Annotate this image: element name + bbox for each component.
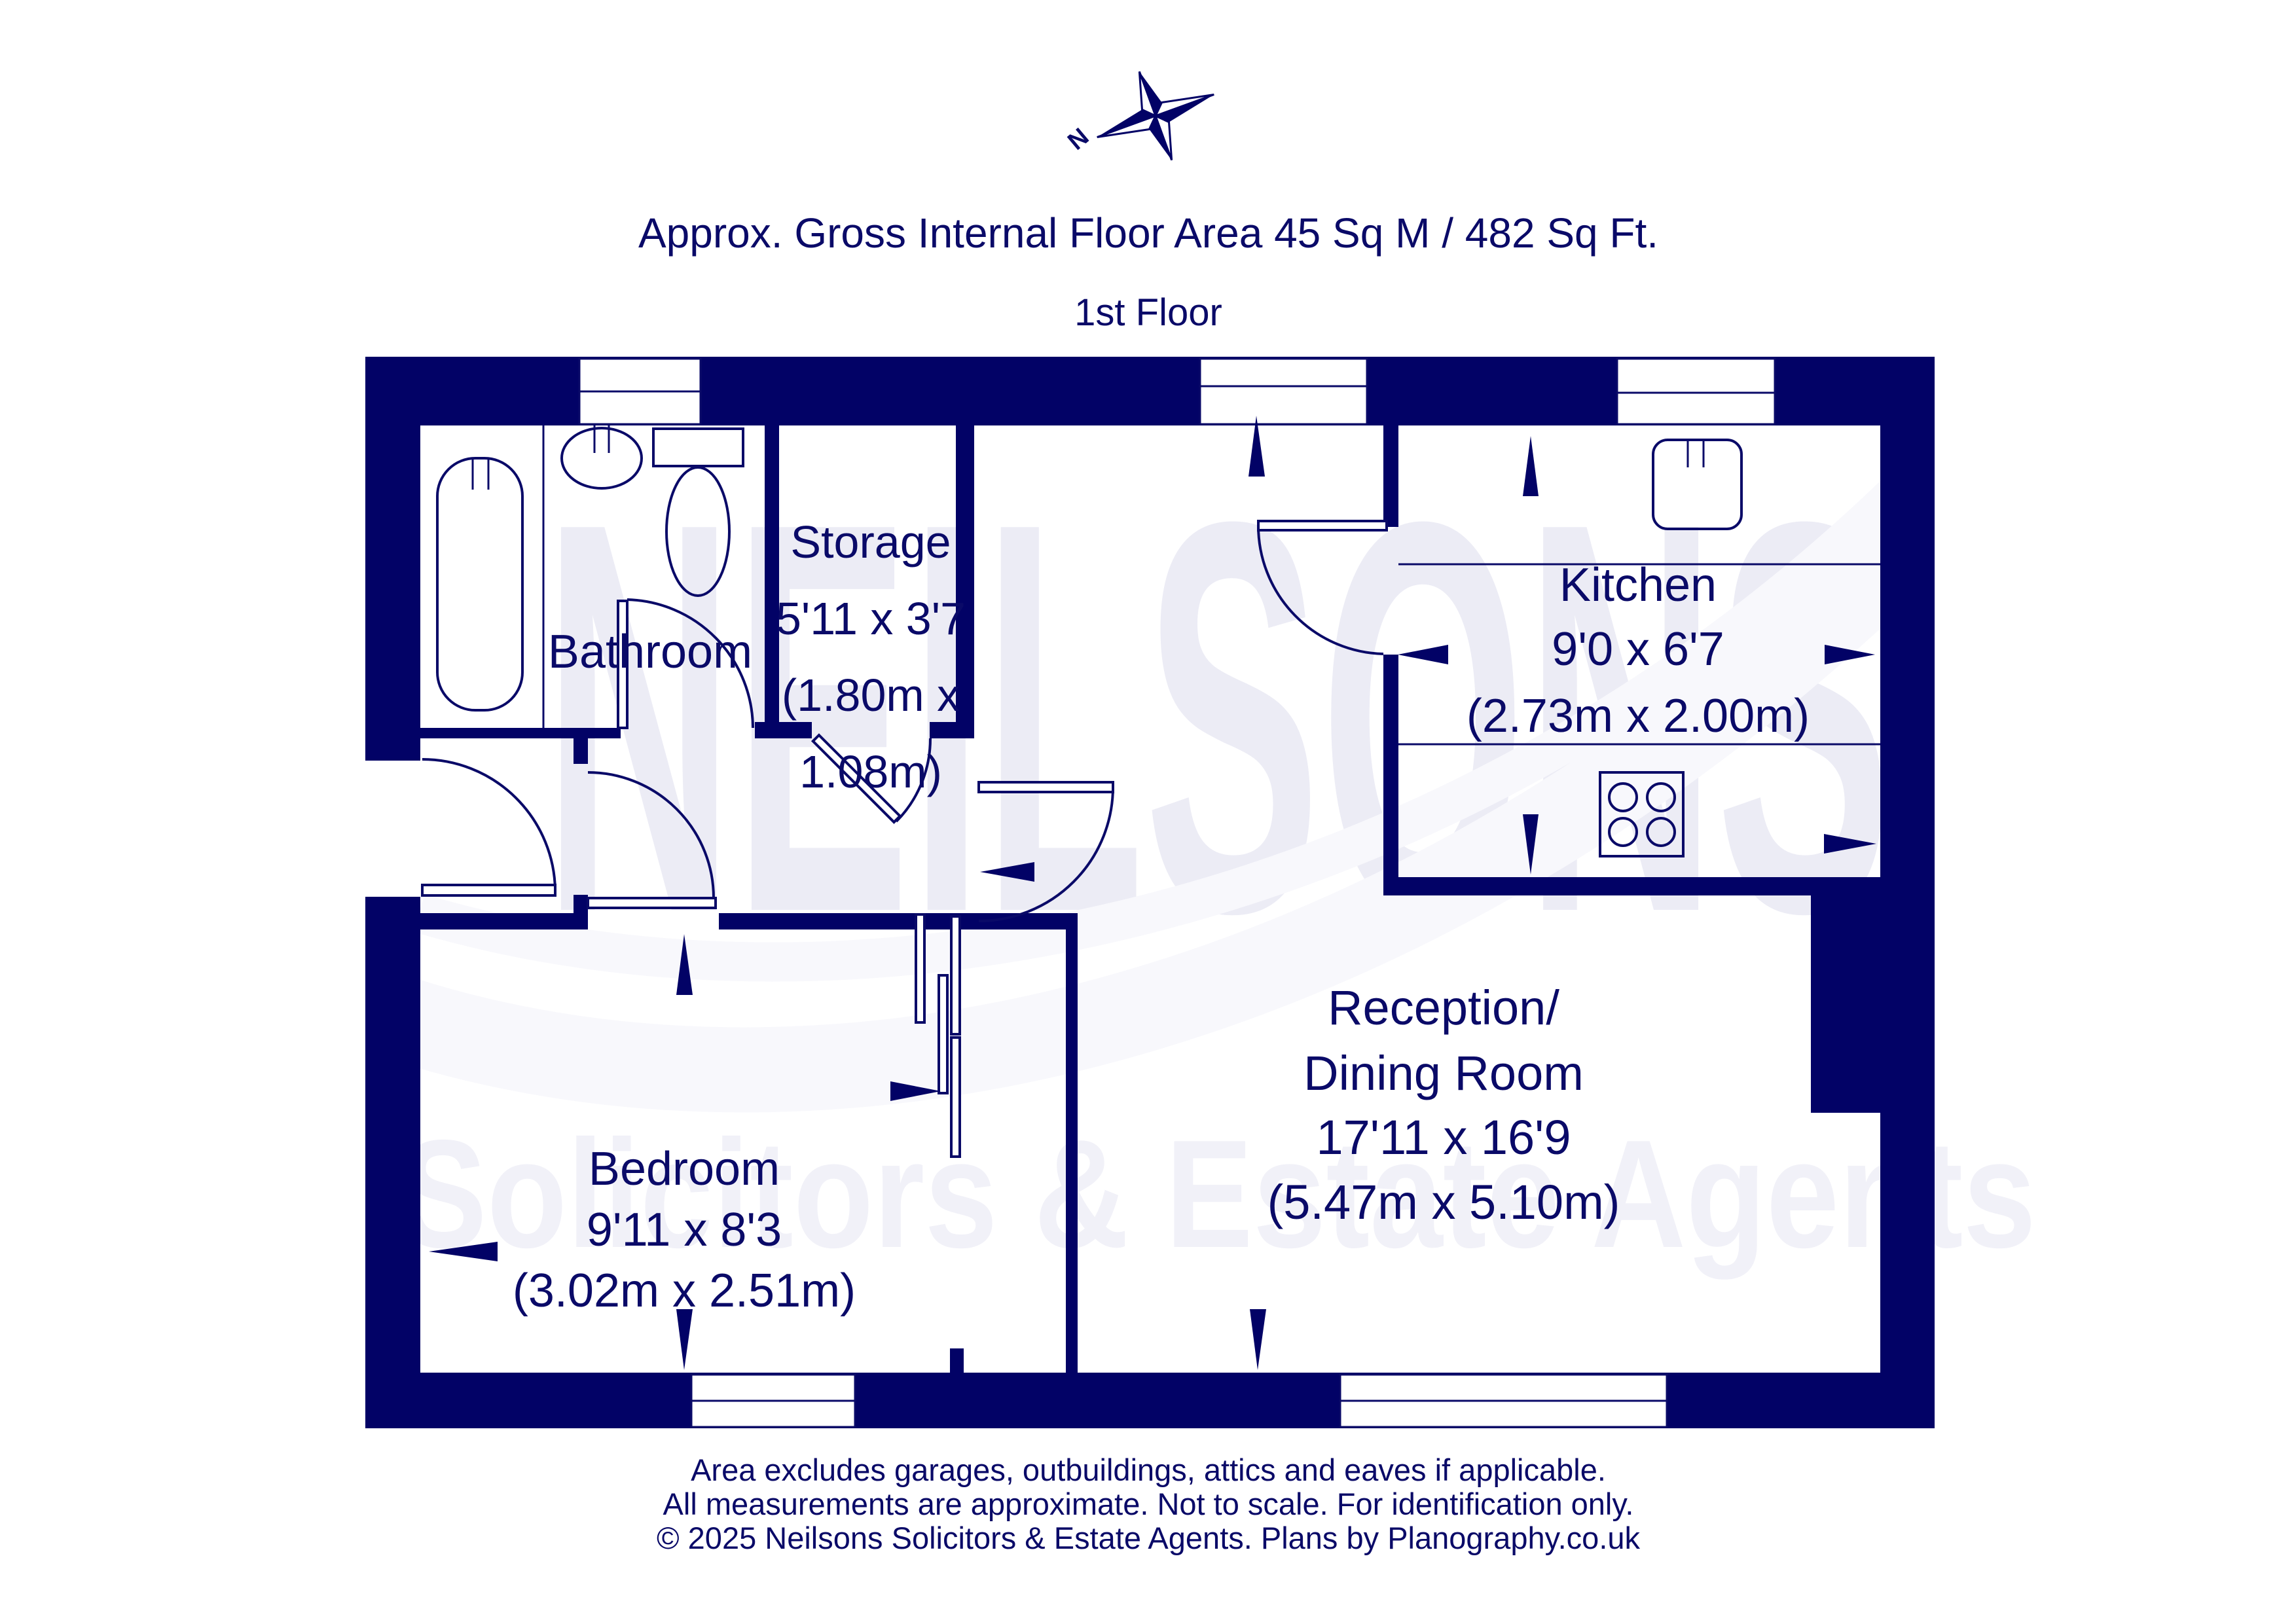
wall-bottom bbox=[365, 1373, 1935, 1428]
wall-bathroom-storage-divider bbox=[765, 425, 779, 722]
storage-dims-metric-2: 1.08m) bbox=[799, 746, 942, 797]
wall-bedroom-top-left bbox=[420, 913, 588, 929]
dimension-arrow-bedroom-down bbox=[676, 1309, 693, 1370]
dimension-arrow-reception-down bbox=[1250, 1309, 1266, 1370]
wall-left-lower bbox=[365, 897, 420, 1428]
wall-wardrobe-stub bbox=[950, 1348, 964, 1373]
bathroom-label: Bathroom bbox=[548, 626, 752, 678]
window-kitchen bbox=[1617, 359, 1775, 424]
wall-storage-bottom-right bbox=[930, 722, 956, 738]
window-bathroom bbox=[579, 359, 701, 424]
reception-dims-imperial: 17'11 x 16'9 bbox=[1317, 1110, 1571, 1164]
wall-kitchen-left-upper bbox=[1383, 425, 1398, 527]
bedroom-dims-imperial: 9'11 x 8'3 bbox=[587, 1204, 782, 1256]
entrance-door-leaf bbox=[422, 885, 555, 895]
wall-chimney-breast bbox=[1811, 890, 1880, 1113]
sliding-panel bbox=[951, 1038, 960, 1157]
entrance-opening bbox=[363, 761, 422, 897]
kitchen-label: Kitchen bbox=[1559, 559, 1717, 611]
sliding-panel bbox=[916, 914, 924, 1022]
bedroom-dims-metric: (3.02m x 2.51m) bbox=[513, 1265, 856, 1317]
wall-left-upper bbox=[365, 357, 420, 761]
storage-dims-imperial: 5'11 x 3'7 bbox=[776, 593, 966, 644]
reception-door-leaf bbox=[979, 782, 1113, 792]
footer-disclaimer: Area excludes garages, outbuildings, att… bbox=[657, 1453, 1641, 1555]
footer-line-2: All measurements are approximate. Not to… bbox=[663, 1487, 1634, 1521]
page-title: Approx. Gross Internal Floor Area 45 Sq … bbox=[638, 209, 1658, 257]
wall-bedroom-top-right bbox=[719, 913, 1077, 929]
window-hall bbox=[1200, 359, 1367, 424]
bedroom-door-leaf bbox=[588, 898, 716, 908]
wall-hall-stub-lower bbox=[574, 895, 588, 914]
reception-dims-metric: (5.47m x 5.10m) bbox=[1267, 1175, 1620, 1229]
floor-label: 1st Floor bbox=[1074, 291, 1222, 334]
footer-line-1: Area excludes garages, outbuildings, att… bbox=[691, 1453, 1606, 1487]
compass-rose-icon: N bbox=[1063, 50, 1230, 181]
sliding-panel bbox=[939, 975, 947, 1093]
bedroom-label: Bedroom bbox=[589, 1143, 780, 1195]
window-reception bbox=[1340, 1375, 1667, 1427]
kitchen-dims-imperial: 9'0 x 6'7 bbox=[1552, 623, 1724, 676]
wall-kitchen-bottom bbox=[1383, 877, 1880, 895]
wall-bedroom-reception-partition bbox=[1066, 913, 1078, 1373]
kitchen-dims-metric: (2.73m x 2.00m) bbox=[1467, 690, 1810, 742]
reception-label-2: Dining Room bbox=[1303, 1046, 1584, 1100]
wall-storage-bottom-left bbox=[755, 722, 812, 738]
entrance-door bbox=[422, 759, 555, 895]
wall-right bbox=[1880, 357, 1935, 1428]
wall-kitchen-left-lower bbox=[1383, 655, 1398, 895]
wall-bathroom-bottom bbox=[420, 728, 621, 738]
sliding-panel bbox=[951, 916, 960, 1034]
compass-north-label: N bbox=[1063, 123, 1094, 156]
kitchen-door-leaf bbox=[1258, 521, 1387, 530]
storage-dims-metric-1: (1.80m x bbox=[782, 670, 960, 721]
reception-label-1: Reception/ bbox=[1328, 981, 1559, 1035]
floorplan-page: NEILSONS Solicitors & Estate Agents N Ap… bbox=[0, 0, 2296, 1624]
footer-line-3: © 2025 Neilsons Solicitors & Estate Agen… bbox=[657, 1521, 1641, 1555]
wall-hall-stub-upper bbox=[574, 728, 588, 764]
bathtub bbox=[437, 458, 522, 710]
window-bedroom bbox=[691, 1375, 855, 1427]
storage-label: Storage bbox=[790, 516, 951, 568]
entrance-door-swing-arc bbox=[422, 759, 555, 890]
